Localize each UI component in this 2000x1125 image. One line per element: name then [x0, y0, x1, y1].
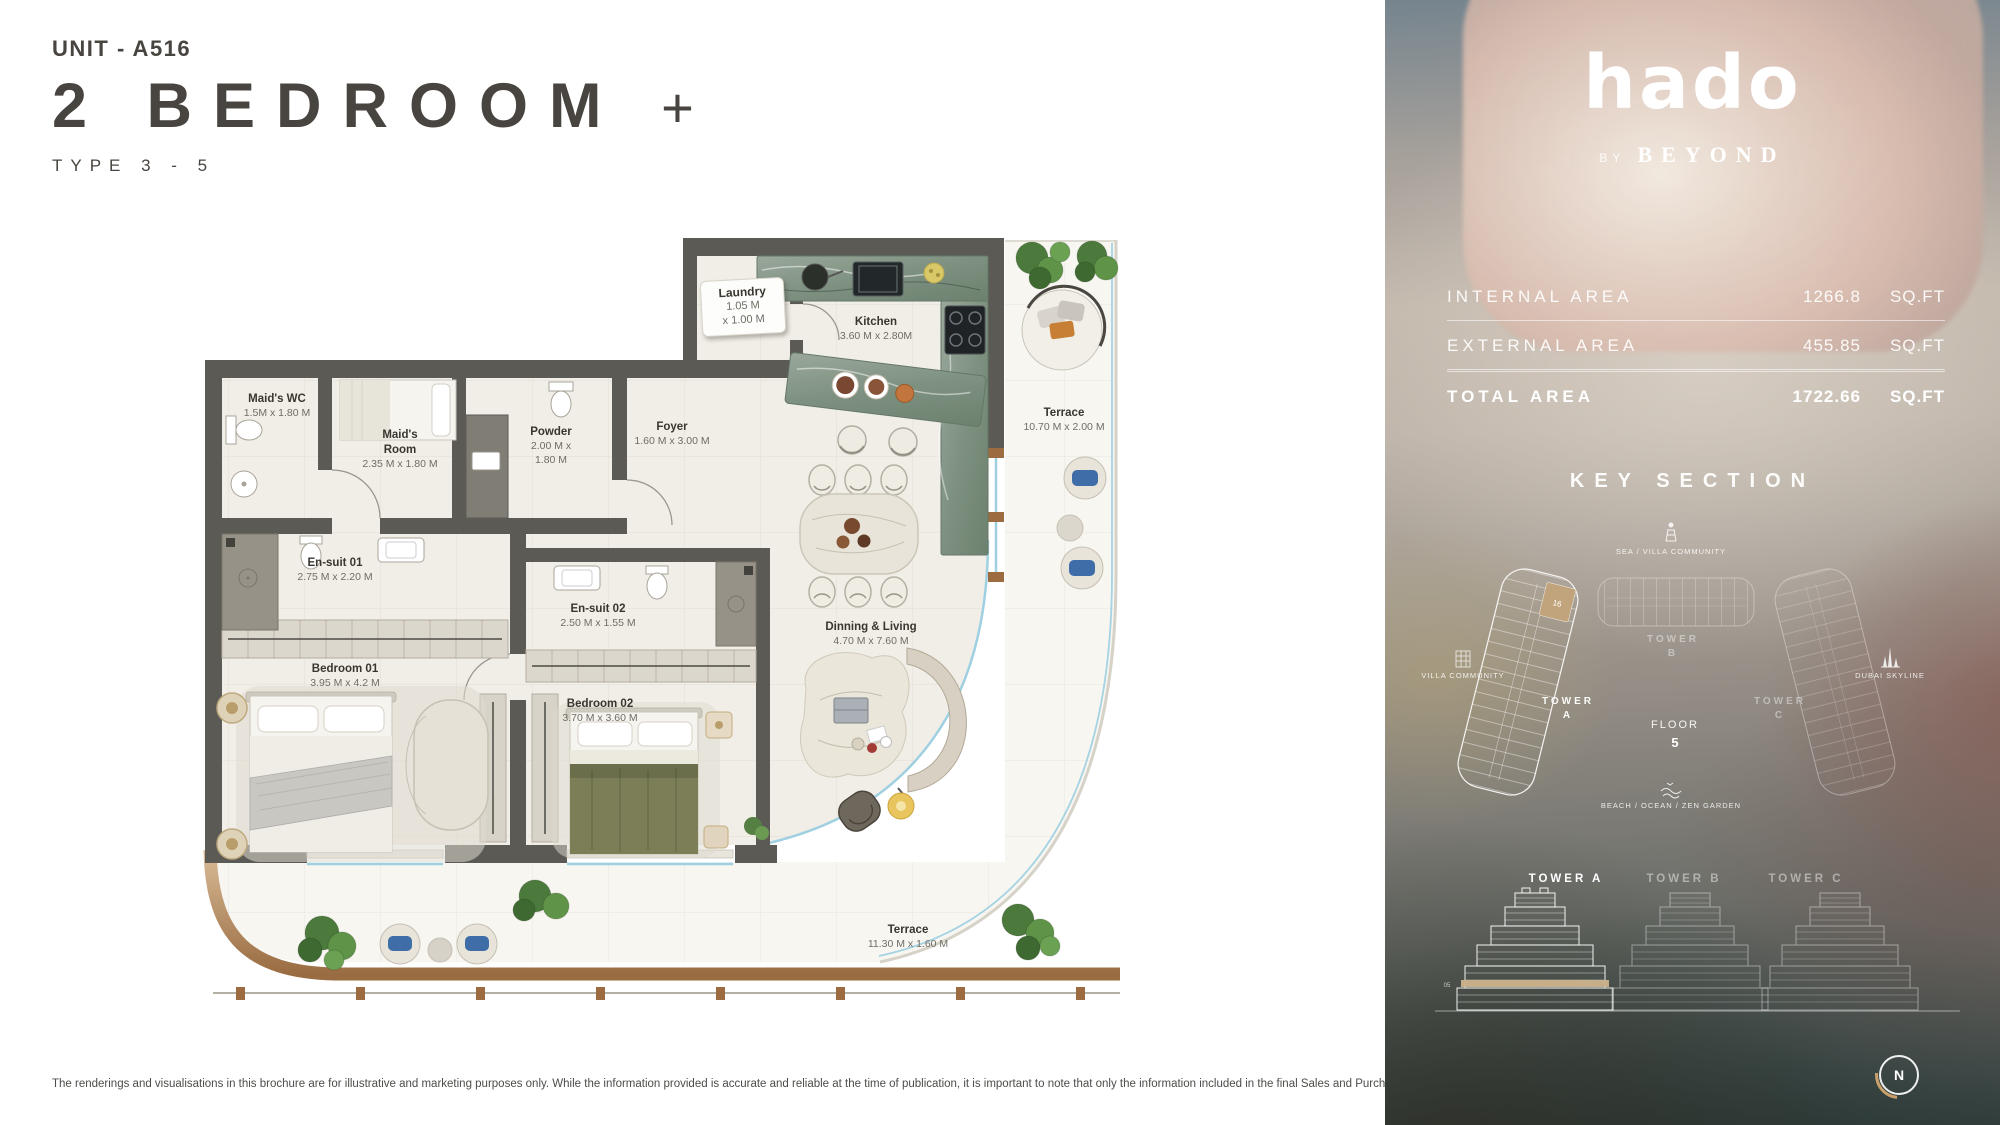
bedroom-01-furniture [217, 686, 488, 862]
elevation-tower-a-label: TOWER A [1529, 873, 1604, 885]
total-area-row: TOTAL AREA 1722.66 SQ.FT [1447, 372, 1945, 420]
sea-villa-label: SEA / VILLA COMMUNITY [1616, 547, 1726, 556]
beach-ocean-label: BEACH / OCEAN / ZEN GARDEN [1601, 801, 1741, 810]
external-area-row: EXTERNAL AREA 455.85 SQ.FT [1447, 321, 1945, 372]
unit-label: UNIT - A516 [52, 36, 694, 62]
key-section-map: SEA / VILLA COMMUNITY 16 V [1415, 510, 1975, 810]
service-shaft [466, 415, 508, 518]
dubai-skyline-label: DUBAI SKYLINE [1855, 671, 1925, 680]
room-label-ensuit-01: En-suit 01 2.75 M x 2.20 M [297, 556, 372, 585]
room-label-maids-wc: Maid's WC 1.5M x 1.80 M [244, 392, 311, 421]
title-text: 2 BEDROOM [52, 71, 623, 141]
room-label-terrace-right: Terrace 10.70 M x 2.00 M [1023, 406, 1104, 435]
brand-byline: BYBEYOND [1385, 142, 2000, 168]
room-label-bedroom-02: Bedroom 02 3.70 M x 3.60 M [562, 697, 637, 726]
tower-a-keyplan: 16 [1453, 564, 1583, 800]
room-label-ensuit-02: En-suit 02 2.50 M x 1.55 M [560, 602, 635, 631]
beyond-text: BEYOND [1637, 142, 1785, 167]
title-plus: + [661, 76, 694, 139]
elevation-tower-b-label: TOWER B [1646, 873, 1721, 885]
room-label-bedroom-01: Bedroom 01 3.95 M x 4.2 M [310, 662, 379, 691]
brand: hado BYBEYOND [1385, 46, 2000, 168]
key-section-title: KEY SECTION [1385, 470, 2000, 493]
floor-5-highlight-band [1461, 980, 1609, 987]
powder-fixtures [549, 382, 573, 417]
tower-a-letter: A [1563, 710, 1573, 721]
tower-b-word: TOWER [1647, 634, 1699, 645]
brand-logo: hado [1385, 46, 2000, 120]
villa-community-icon [1456, 651, 1470, 667]
area-table: INTERNAL AREA 1266.8 SQ.FT EXTERNAL AREA… [1447, 272, 1945, 420]
room-label-kitchen: Kitchen 3.60 M x 2.80M [840, 315, 912, 344]
tower-c-keyplan [1770, 564, 1900, 800]
internal-area-row: INTERNAL AREA 1266.8 SQ.FT [1447, 272, 1945, 321]
beach-ocean-icon [1661, 783, 1681, 798]
tower-c-word: TOWER [1754, 696, 1806, 707]
brochure-page: UNIT - A516 2 BEDROOM + TYPE 3 - 5 Laund… [0, 0, 2000, 1125]
tower-b-keyplan [1598, 578, 1754, 626]
floor-value: 5 [1671, 735, 1678, 750]
room-label-laundry: Laundry 1.05 M x 1.00 M [700, 277, 787, 337]
villa-community-label: VILLA COMMUNITY [1421, 671, 1504, 680]
by-text: BY [1599, 151, 1625, 165]
sidebar: hado BYBEYOND INTERNAL AREA 1266.8 SQ.FT… [1385, 0, 2000, 1125]
elevation-tower-c-label: TOWER C [1768, 873, 1843, 885]
type-label: TYPE 3 - 5 [52, 156, 694, 176]
room-label-foyer: Foyer 1.60 M x 3.00 M [634, 420, 709, 449]
header: UNIT - A516 2 BEDROOM + TYPE 3 - 5 [52, 36, 694, 176]
tower-a-elevation: 05 [1444, 888, 1613, 1010]
tower-c-elevation [1762, 893, 1918, 1010]
tower-elevations: TOWER A TOWER B TOWER C 05 [1415, 860, 1975, 1025]
sea-villa-community-icon [1666, 523, 1676, 541]
dining-set [800, 465, 918, 607]
dubai-skyline-icon [1881, 647, 1900, 667]
disclaimer: The renderings and visualisations in thi… [52, 1078, 1604, 1090]
tower-b-letter: B [1668, 648, 1678, 659]
tower-b-elevation [1612, 893, 1768, 1010]
north-compass: N [1879, 1055, 1919, 1095]
floor-band-number: 05 [1444, 983, 1451, 989]
floor-label: FLOOR [1651, 719, 1699, 731]
tower-c-letter: C [1775, 710, 1785, 721]
tower-a-word: TOWER [1542, 696, 1594, 707]
room-label-maids-room: Maid's Room 2.35 M x 1.80 M [362, 428, 437, 472]
room-label-dining-living: Dinning & Living 4.70 M x 7.60 M [825, 620, 916, 649]
room-label-powder: Powder 2.00 M x 1.80 M [520, 425, 582, 467]
compass-n: N [1894, 1067, 1904, 1083]
room-label-terrace-bottom: Terrace 11.30 M x 1.60 M [868, 923, 948, 952]
page-title: 2 BEDROOM + [52, 70, 694, 142]
